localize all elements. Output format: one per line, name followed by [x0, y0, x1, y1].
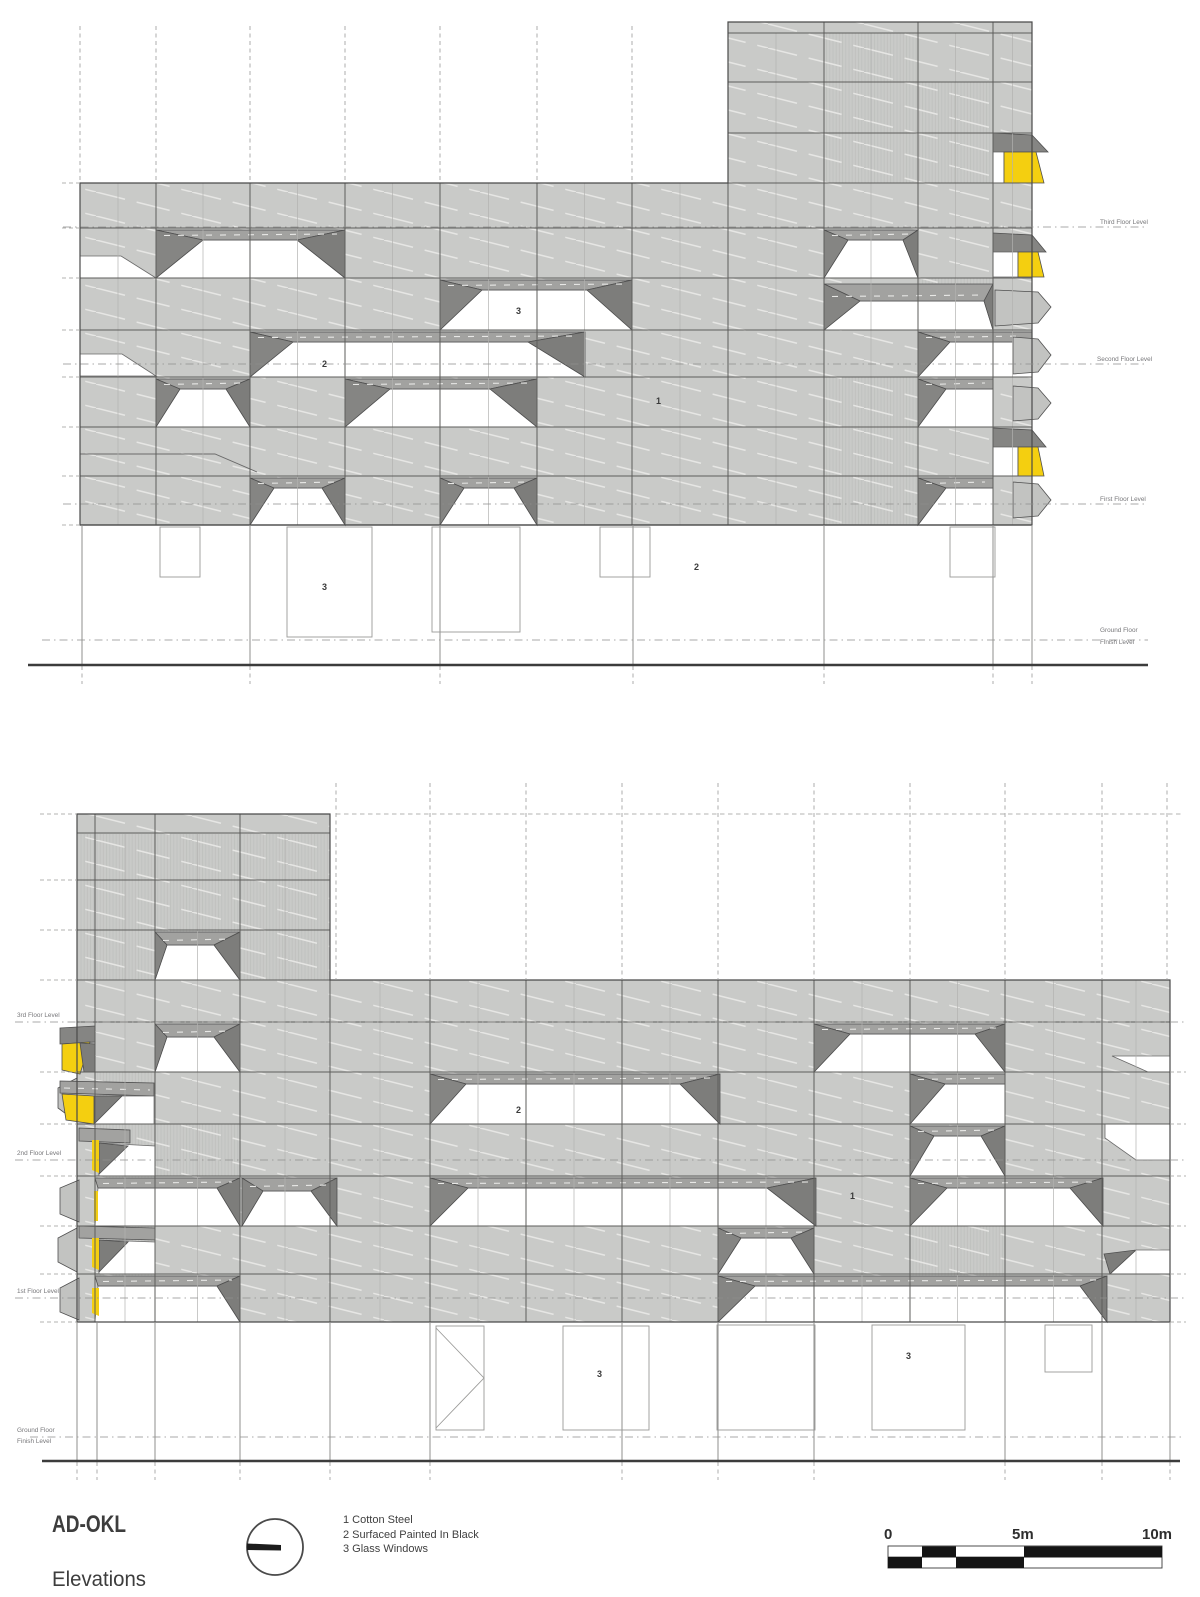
svg-text:1: 1 [850, 1191, 855, 1201]
svg-text:0: 0 [884, 1526, 892, 1543]
svg-text:3: 3 [516, 306, 521, 316]
svg-text:Finish Level: Finish Level [1100, 639, 1134, 646]
svg-text:3: 3 [906, 1351, 911, 1361]
svg-text:3: 3 [597, 1369, 602, 1379]
svg-text:3 Glass Windows: 3 Glass Windows [343, 1543, 428, 1555]
svg-text:3: 3 [322, 582, 327, 592]
svg-text:Third Floor Level: Third Floor Level [1100, 219, 1148, 226]
svg-text:1 Cotton Steel: 1 Cotton Steel [343, 1514, 413, 1526]
svg-text:2nd Floor Level: 2nd Floor Level [17, 1150, 61, 1157]
svg-text:AD-OKL: AD-OKL [52, 1511, 126, 1538]
svg-text:Elevations: Elevations [52, 1567, 146, 1591]
svg-text:Second Floor Level: Second Floor Level [1097, 356, 1152, 363]
svg-text:10m: 10m [1142, 1526, 1172, 1543]
svg-text:2 Surfaced Painted In Black: 2 Surfaced Painted In Black [343, 1529, 479, 1541]
svg-text:5m: 5m [1012, 1526, 1034, 1543]
svg-text:2: 2 [516, 1105, 521, 1115]
svg-text:2: 2 [694, 562, 699, 572]
svg-text:Ground Floor: Ground Floor [1100, 627, 1139, 634]
svg-text:First Floor Level: First Floor Level [1100, 496, 1146, 503]
svg-text:Finish Level: Finish Level [17, 1438, 51, 1445]
svg-text:3rd Floor Level: 3rd Floor Level [17, 1012, 60, 1019]
svg-text:2: 2 [322, 359, 327, 369]
svg-text:1: 1 [656, 396, 661, 406]
svg-text:Ground Floor: Ground Floor [17, 1427, 56, 1434]
svg-text:1st Floor Level: 1st Floor Level [17, 1288, 59, 1295]
